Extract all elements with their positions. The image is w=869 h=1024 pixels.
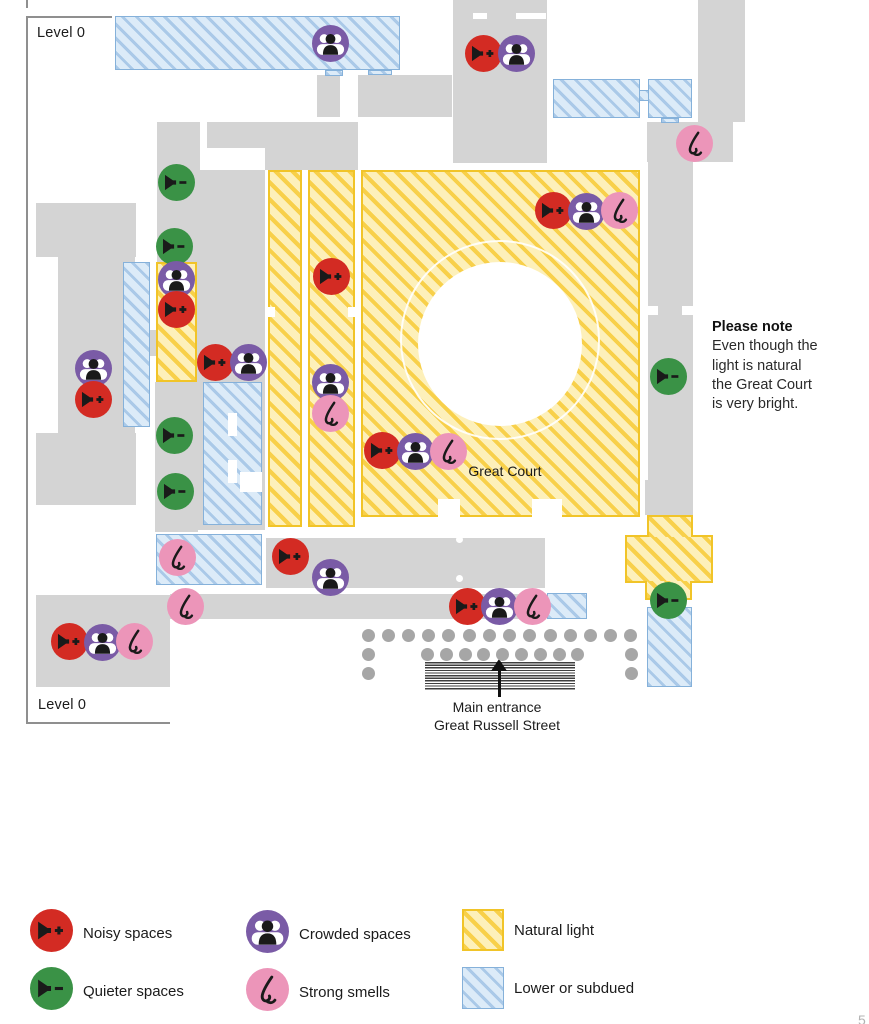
queue-dot bbox=[523, 629, 536, 642]
corridor-right bbox=[648, 162, 693, 515]
map-dot bbox=[456, 536, 463, 543]
door-gap bbox=[438, 499, 460, 517]
smells-marker-icon bbox=[312, 395, 349, 432]
legend-item-noisy: Noisy spaces bbox=[30, 909, 172, 957]
smells-marker-icon bbox=[430, 433, 467, 470]
queue-dot bbox=[584, 629, 597, 642]
queue-dot bbox=[625, 667, 638, 680]
room-block-west bbox=[36, 433, 136, 505]
reading-room-circle bbox=[418, 262, 582, 426]
queue-dot bbox=[422, 629, 435, 642]
natural-light-cross-tab bbox=[647, 515, 693, 537]
room-block-west bbox=[36, 203, 136, 257]
please-note-line: light is natural bbox=[712, 357, 842, 376]
room-block bbox=[453, 0, 547, 163]
natural-light-area bbox=[268, 170, 302, 527]
please-note-line: is very bright. bbox=[712, 395, 842, 414]
quieter-marker-icon bbox=[156, 417, 193, 454]
subdued-light-tab bbox=[325, 70, 343, 76]
legend-item-crowded: Crowded spaces bbox=[246, 910, 411, 958]
queue-dot bbox=[459, 648, 472, 661]
crowded-marker-icon bbox=[568, 193, 605, 230]
subdued-light-area bbox=[123, 262, 150, 427]
legend-item-quieter: Quieter spaces bbox=[30, 967, 184, 1015]
crowded-marker-icon bbox=[312, 25, 349, 62]
crowded-marker-icon bbox=[230, 344, 267, 381]
smells-marker-icon bbox=[159, 539, 196, 576]
room-block bbox=[317, 75, 340, 117]
smells-marker-icon bbox=[514, 588, 551, 625]
crowded-spaces-icon bbox=[246, 910, 289, 958]
quieter-marker-icon bbox=[157, 473, 194, 510]
noisy-marker-icon bbox=[197, 344, 234, 381]
queue-dot bbox=[483, 629, 496, 642]
queue-dot bbox=[402, 629, 415, 642]
queue-dot bbox=[534, 648, 547, 661]
door-gap bbox=[648, 306, 658, 315]
door-gap bbox=[348, 307, 355, 317]
queue-dot bbox=[503, 629, 516, 642]
smells-marker-icon bbox=[601, 192, 638, 229]
queue-dot bbox=[564, 629, 577, 642]
queue-dot bbox=[442, 629, 455, 642]
crowded-marker-icon bbox=[397, 433, 434, 470]
door-gap bbox=[268, 307, 275, 317]
legend-label: Noisy spaces bbox=[83, 925, 172, 942]
legend-label: Crowded spaces bbox=[299, 926, 411, 943]
please-note-line: the Great Court bbox=[712, 376, 842, 395]
entrance-label-line2: Great Russell Street bbox=[377, 716, 617, 734]
natural-light-area bbox=[308, 170, 355, 527]
queue-dot bbox=[362, 648, 375, 661]
sensory-map-page: Level 0 Level 0 bbox=[0, 0, 869, 1024]
subdued-light-tab bbox=[368, 70, 392, 75]
noisy-marker-icon bbox=[51, 623, 88, 660]
queue-dot bbox=[553, 648, 566, 661]
subdued-light-area bbox=[115, 16, 400, 70]
queue-dot bbox=[440, 648, 453, 661]
legend-item-subdued-light: Lower or subdued bbox=[462, 967, 634, 1009]
stair-slot bbox=[228, 413, 237, 436]
legend-item-natural-light: Natural light bbox=[462, 909, 594, 951]
noisy-spaces-icon bbox=[30, 909, 73, 957]
corridor-mid bbox=[155, 382, 198, 532]
door-gap bbox=[473, 13, 487, 19]
smells-marker-icon bbox=[167, 588, 204, 625]
room-block bbox=[358, 75, 452, 117]
map-dot bbox=[456, 575, 463, 582]
stair-slot bbox=[228, 460, 237, 483]
noisy-marker-icon bbox=[364, 432, 401, 469]
smells-marker-icon bbox=[116, 623, 153, 660]
subdued-light-area bbox=[648, 79, 692, 118]
legend-label: Quieter spaces bbox=[83, 983, 184, 1000]
quieter-marker-icon bbox=[650, 582, 687, 619]
subdued-light-swatch bbox=[462, 967, 504, 1009]
queue-dot bbox=[515, 648, 528, 661]
legend-label: Lower or subdued bbox=[514, 980, 634, 997]
queue-dot bbox=[604, 629, 617, 642]
noisy-marker-icon bbox=[272, 538, 309, 575]
legend-label: Strong smells bbox=[299, 984, 390, 1001]
noisy-marker-icon bbox=[313, 258, 350, 295]
legend-label: Natural light bbox=[514, 922, 594, 939]
queue-dot bbox=[362, 629, 375, 642]
room-block bbox=[698, 0, 745, 122]
noisy-marker-icon bbox=[158, 291, 195, 328]
please-note-title: Please note bbox=[712, 318, 842, 337]
noisy-marker-icon bbox=[75, 381, 112, 418]
please-note-line: Even though the bbox=[712, 337, 842, 356]
queue-dot bbox=[625, 648, 638, 661]
entrance-label-line1: Main entrance bbox=[377, 698, 617, 716]
entrance-arrow bbox=[498, 670, 501, 697]
queue-dot bbox=[544, 629, 557, 642]
crowded-marker-icon bbox=[312, 559, 349, 596]
door-gap bbox=[682, 306, 693, 315]
door-gap bbox=[516, 13, 546, 19]
subdued-light-area bbox=[547, 593, 587, 619]
noisy-marker-icon bbox=[465, 35, 502, 72]
subdued-light-stairs bbox=[203, 382, 262, 525]
quieter-marker-icon bbox=[156, 228, 193, 265]
crowded-marker-icon bbox=[498, 35, 535, 72]
quieter-spaces-icon bbox=[30, 967, 73, 1015]
queue-dot bbox=[477, 648, 490, 661]
queue-dot bbox=[362, 667, 375, 680]
door-gap bbox=[532, 499, 562, 517]
queue-dot bbox=[624, 629, 637, 642]
smells-marker-icon bbox=[676, 125, 713, 162]
please-note: Please note Even though the light is nat… bbox=[712, 318, 842, 414]
quieter-marker-icon bbox=[650, 358, 687, 395]
corridor-top-band bbox=[265, 140, 358, 170]
queue-dot bbox=[421, 648, 434, 661]
subdued-light-area bbox=[553, 79, 640, 118]
queue-dot bbox=[571, 648, 584, 661]
stair-notch bbox=[240, 472, 262, 492]
entrance-arrow-head bbox=[491, 659, 507, 671]
natural-light-cross bbox=[625, 535, 713, 583]
page-number: 5 bbox=[858, 1012, 866, 1024]
crowded-marker-icon bbox=[481, 588, 518, 625]
queue-dot bbox=[382, 629, 395, 642]
legend-item-smells: Strong smells bbox=[246, 968, 390, 1016]
quieter-marker-icon bbox=[158, 164, 195, 201]
entrance-label: Main entrance Great Russell Street bbox=[377, 698, 617, 734]
natural-light-swatch bbox=[462, 909, 504, 951]
room-block bbox=[645, 480, 693, 515]
queue-dot bbox=[496, 648, 509, 661]
noisy-marker-icon bbox=[535, 192, 572, 229]
queue-dot bbox=[463, 629, 476, 642]
subdued-light-tab bbox=[661, 118, 679, 123]
subdued-light-area bbox=[647, 607, 692, 687]
strong-smells-icon bbox=[246, 968, 289, 1016]
